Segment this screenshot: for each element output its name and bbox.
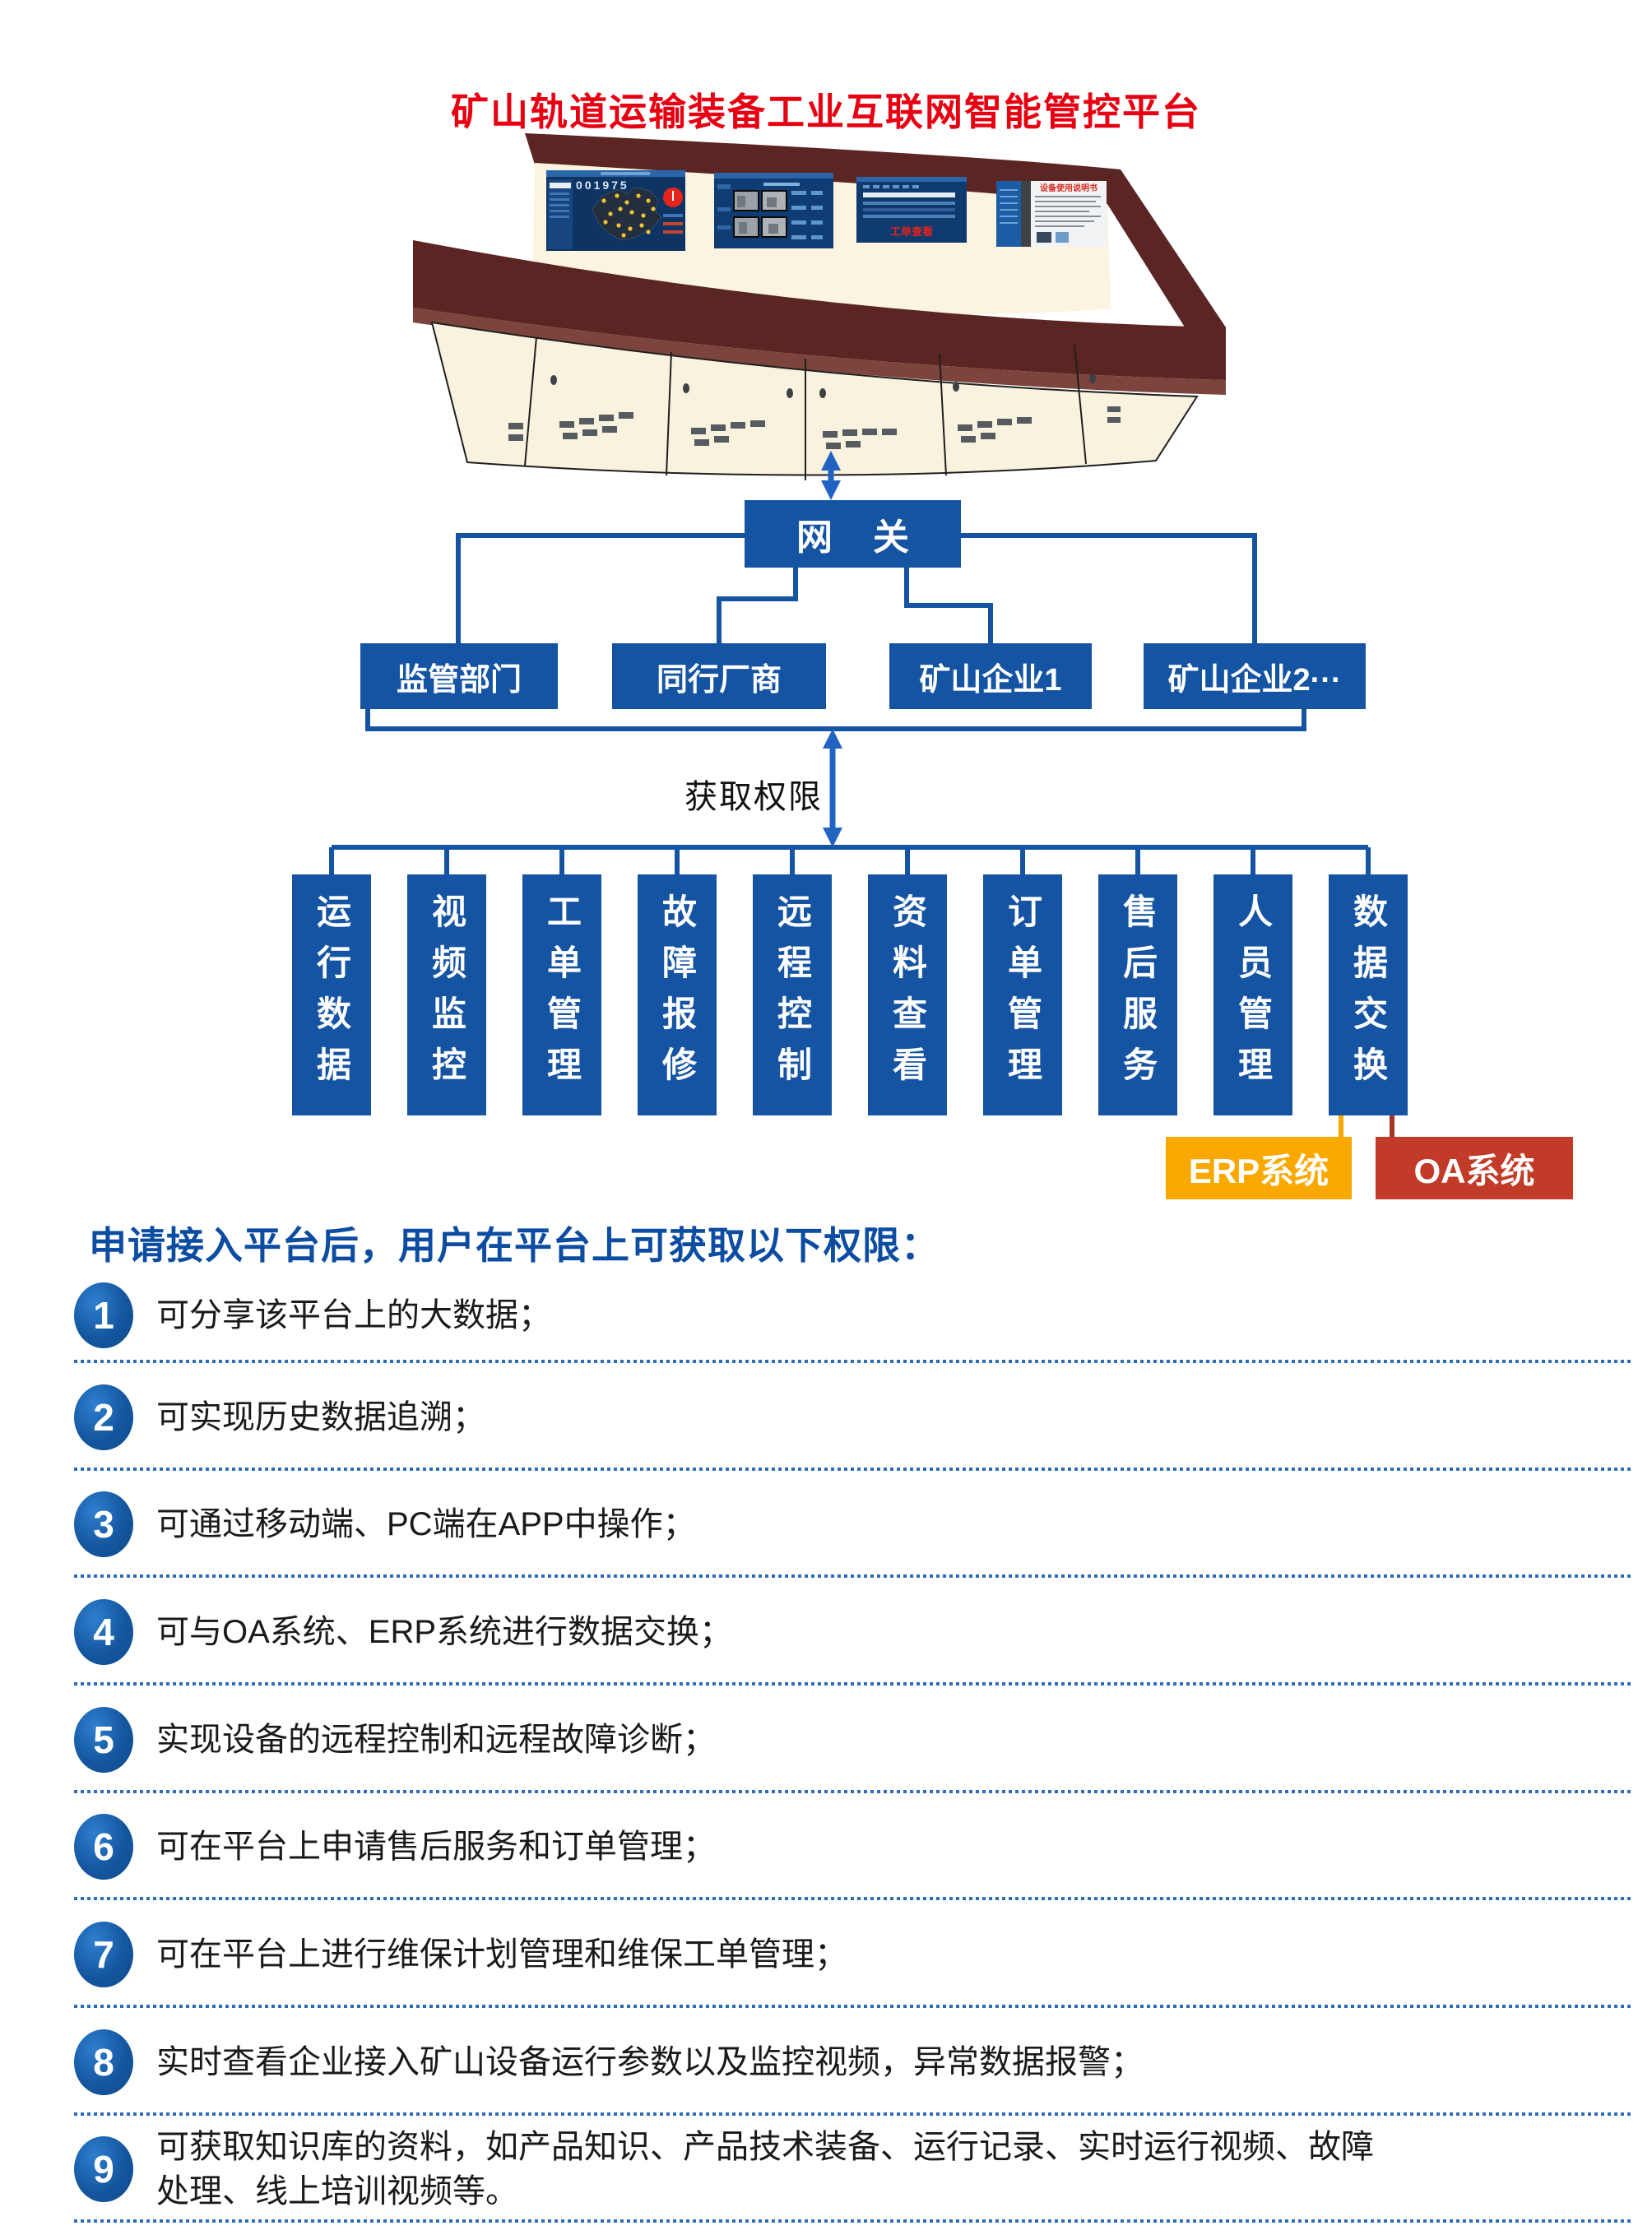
item-separator	[74, 2219, 1632, 2223]
item-badge: 8	[74, 2029, 133, 2095]
item-text: 可与OA系统、ERP系统进行数据交换；	[156, 1610, 732, 1654]
item-badge: 5	[74, 1707, 133, 1773]
permission-item-2: 2 可实现历史数据追溯；	[74, 1363, 1632, 1471]
item-badge: 2	[74, 1384, 133, 1450]
module-box-operating-data: 运行数据	[292, 874, 371, 1115]
org-box-mine-company-1: 矿山企业1	[889, 643, 1092, 709]
monitor-screen-3: 工单查看	[856, 177, 967, 243]
module-box-order-management: 订单管理	[983, 874, 1062, 1115]
erp-system-box: ERP系统	[1166, 1137, 1352, 1199]
permission-item-9: 9 可获取知识库的资料，如产品知识、产品技术装备、运行记录、实时运行视频、故障处…	[74, 2116, 1632, 2223]
item-text: 实时查看企业接入矿山设备运行参数以及监控视频，异常数据报警；	[156, 2040, 1144, 2084]
org-box-regulator: 监管部门	[360, 643, 558, 709]
permission-item-5: 5 实现设备的远程控制和远程故障诊断；	[74, 1686, 1632, 1793]
item-badge: 4	[74, 1599, 133, 1665]
monitor-screen-2	[714, 173, 833, 248]
item-badge: 7	[74, 1922, 133, 1987]
permission-item-3: 3 可通过移动端、PC端在APP中操作；	[74, 1471, 1632, 1578]
screen1-number: 001975	[576, 179, 629, 192]
item-badge: 6	[74, 1814, 133, 1880]
module-box-personnel: 人员管理	[1213, 874, 1292, 1115]
item-text: 可在平台上进行维保计划管理和维保工单管理；	[156, 1932, 847, 1977]
item-text: 可实现历史数据追溯；	[156, 1395, 485, 1440]
item-text: 可获取知识库的资料，如产品知识、产品技术装备、运行记录、实时运行视频、故障处理、…	[156, 2125, 1390, 2214]
module-box-fault-repair: 故障报修	[638, 874, 717, 1115]
module-box-after-sales: 售后服务	[1098, 874, 1177, 1115]
oa-system-box: OA系统	[1376, 1137, 1573, 1199]
org-box-mine-company-2: 矿山企业2···	[1144, 643, 1366, 709]
module-box-document-view: 资料查看	[868, 874, 947, 1115]
control-room-illustration: 001975	[411, 132, 1259, 503]
item-text: 实现设备的远程控制和远程故障诊断；	[156, 1718, 716, 1762]
module-box-remote-control: 远程控制	[753, 874, 832, 1115]
permissions-heading: 申请接入平台后，用户在平台上可获取以下权限：	[89, 1216, 940, 1270]
monitor-screen-1: 001975	[546, 170, 685, 251]
item-text: 可通过移动端、PC端在APP中操作；	[156, 1502, 696, 1546]
item-badge: 1	[74, 1282, 133, 1348]
permission-item-8: 8 实时查看企业接入矿山设备运行参数以及监控视频，异常数据报警；	[74, 2008, 1632, 2116]
item-text: 可分享该平台上的大数据；	[156, 1293, 551, 1338]
gateway-box: 网 关	[745, 500, 961, 568]
item-badge: 9	[74, 2136, 133, 2202]
permission-item-4: 4 可与OA系统、ERP系统进行数据交换；	[74, 1578, 1632, 1686]
permission-item-7: 7 可在平台上进行维保计划管理和维保工单管理；	[74, 1900, 1632, 2008]
module-box-work-orders: 工单管理	[522, 874, 601, 1115]
module-box-data-exchange: 数据交换	[1329, 874, 1408, 1115]
monitor-screen-4: 设备使用说明书	[996, 181, 1107, 247]
permission-label: 获取权限	[576, 770, 823, 818]
module-box-video-monitoring: 视频监控	[407, 874, 486, 1115]
permission-arrow	[823, 729, 842, 847]
permission-item-6: 6 可在平台上申请售后服务和订单管理；	[74, 1793, 1632, 1900]
screen4-title: 设备使用说明书	[1040, 183, 1097, 193]
item-text: 可在平台上申请售后服务和订单管理；	[156, 1825, 716, 1869]
page: 矿山轨道运输装备工业互联网智能管控平台	[0, 0, 1652, 2235]
screen3-label: 工单查看	[890, 225, 933, 238]
item-badge: 3	[74, 1491, 133, 1557]
permission-item-1: 1 可分享该平台上的大数据；	[74, 1267, 1632, 1363]
org-box-peer-vendor: 同行厂商	[612, 643, 826, 709]
